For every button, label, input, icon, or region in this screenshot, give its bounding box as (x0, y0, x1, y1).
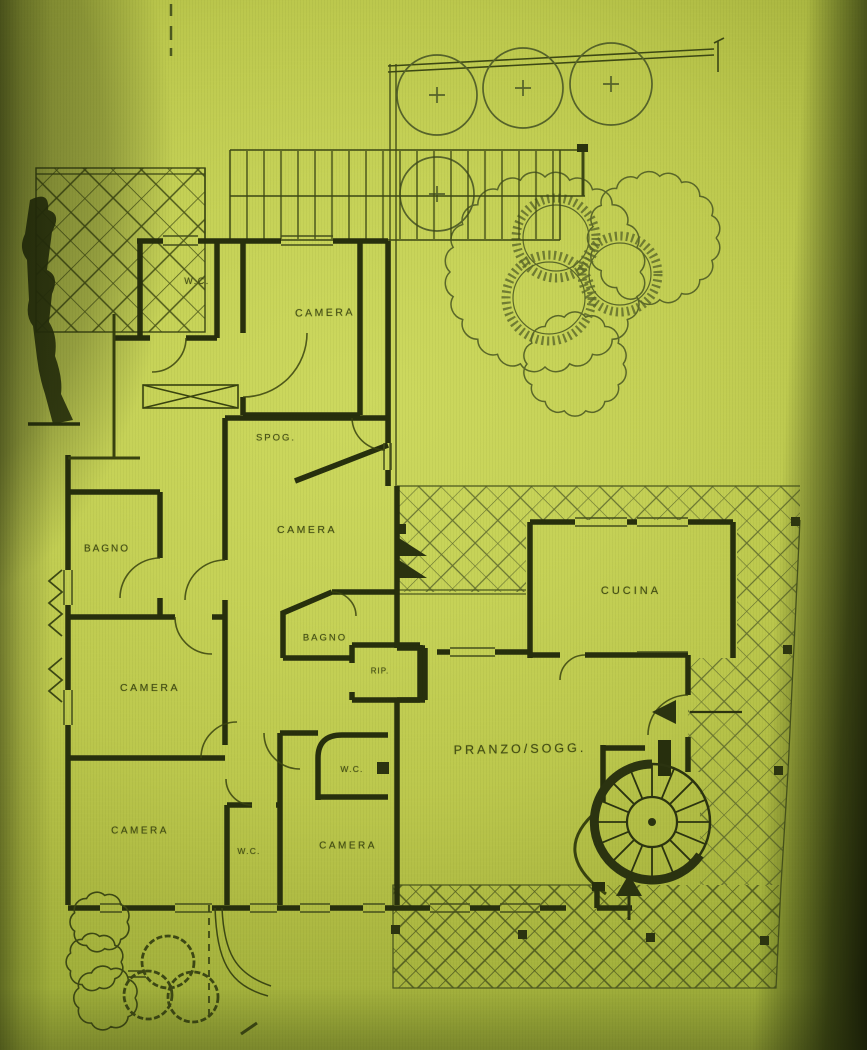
floor-plan-photo: { "document": { "kind": "floor-plan-phot… (0, 0, 867, 1050)
photo-shadow-bottom (0, 0, 867, 1050)
